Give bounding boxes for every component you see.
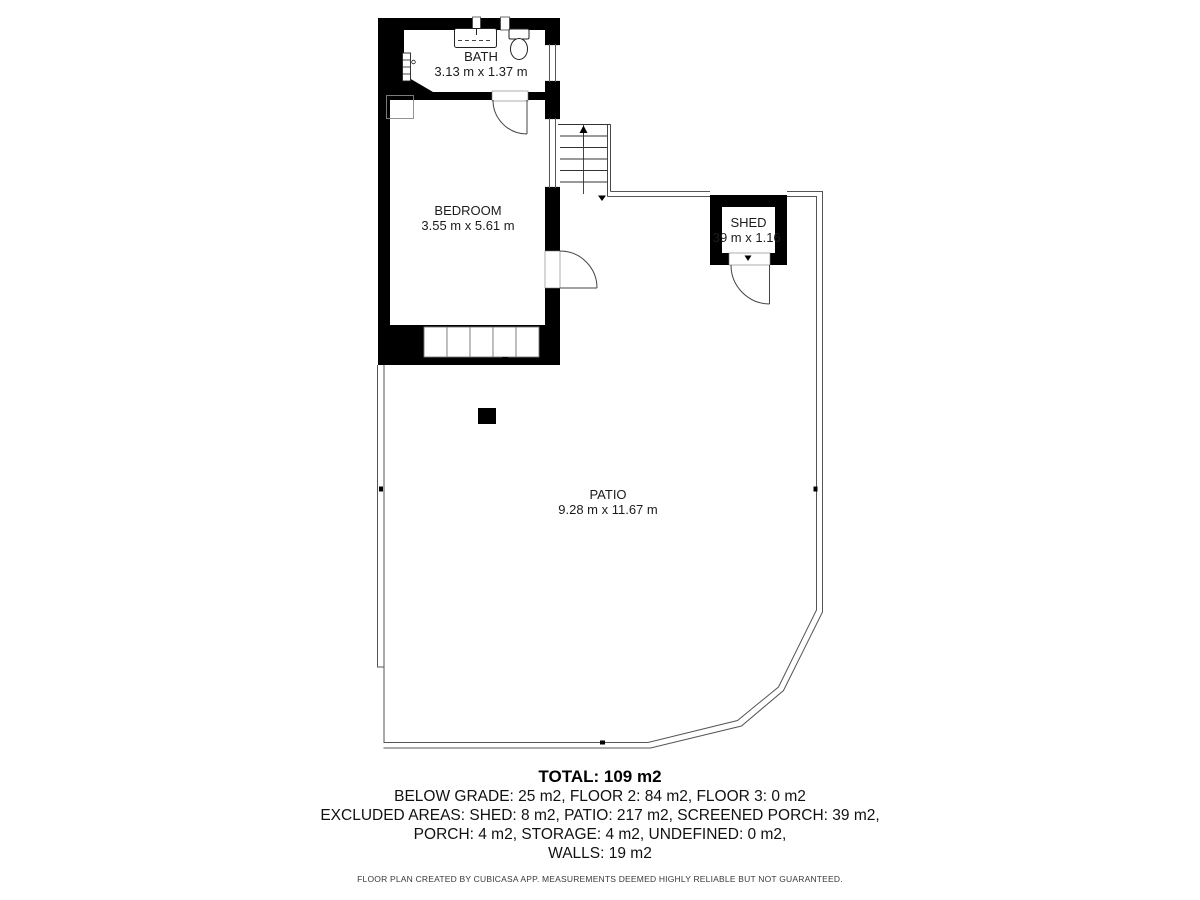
pillar (478, 408, 496, 424)
bedroom-room-label: BEDROOM 3.55 m x 5.61 m (421, 203, 514, 233)
bath-window-icon (545, 44, 560, 82)
stairs-icon (558, 125, 611, 197)
floorplan-drawing (0, 0, 1200, 900)
room-name: BEDROOM (421, 203, 514, 218)
summary-line: EXCLUDED AREAS: SHED: 8 m2, PATIO: 217 m… (0, 806, 1200, 825)
room-dimensions: 3.13 m x 1.37 m (434, 64, 527, 79)
edge-marker (600, 741, 605, 745)
shed-door-arc-icon (731, 265, 770, 304)
shed-room-label: SHED 1.39 m x 1.16 m (712, 215, 785, 249)
bedroom-window-icon (545, 118, 560, 188)
summary-line: PORCH: 4 m2, STORAGE: 4 m2, UNDEFINED: 0… (0, 825, 1200, 844)
stairs-end-marker (598, 196, 606, 202)
summary-line: BELOW GRADE: 25 m2, FLOOR 2: 84 m2, FLOO… (0, 787, 1200, 806)
floorplan-page: BATH 3.13 m x 1.37 m BEDROOM 3.55 m x 5.… (0, 0, 1200, 900)
room-dimensions: 1.39 m x 1.16 m (712, 230, 785, 245)
area-summary: TOTAL: 109 m2 BELOW GRADE: 25 m2, FLOOR … (0, 766, 1200, 863)
patio-room-label: PATIO 9.28 m x 11.67 m (558, 487, 657, 517)
patio-outline-outer (378, 192, 823, 749)
wall-notch (501, 17, 510, 30)
stairs-up-arrow-icon (580, 126, 588, 134)
patio-outline-inner (384, 197, 817, 743)
total-area-text: TOTAL: 109 m2 (0, 766, 1200, 787)
room-dimensions: 9.28 m x 11.67 m (558, 502, 657, 517)
summary-line: WALLS: 19 m2 (0, 844, 1200, 863)
disclaimer-text: FLOOR PLAN CREATED BY CUBICASA APP. MEAS… (0, 874, 1200, 884)
bath-door-arc-icon (492, 91, 528, 134)
room-name: SHED (712, 215, 785, 230)
room-name: BATH (434, 49, 527, 64)
bath-room-label: BATH 3.13 m x 1.37 m (434, 49, 527, 79)
edge-marker (814, 487, 818, 492)
room-name: PATIO (558, 487, 657, 502)
patio-door-arc-icon (545, 251, 597, 288)
wardrobe-cells (424, 327, 539, 357)
radiator-icon (403, 53, 416, 81)
room-dimensions: 3.55 m x 5.61 m (421, 218, 514, 233)
edge-marker (379, 487, 383, 492)
sink-icon (455, 29, 497, 48)
